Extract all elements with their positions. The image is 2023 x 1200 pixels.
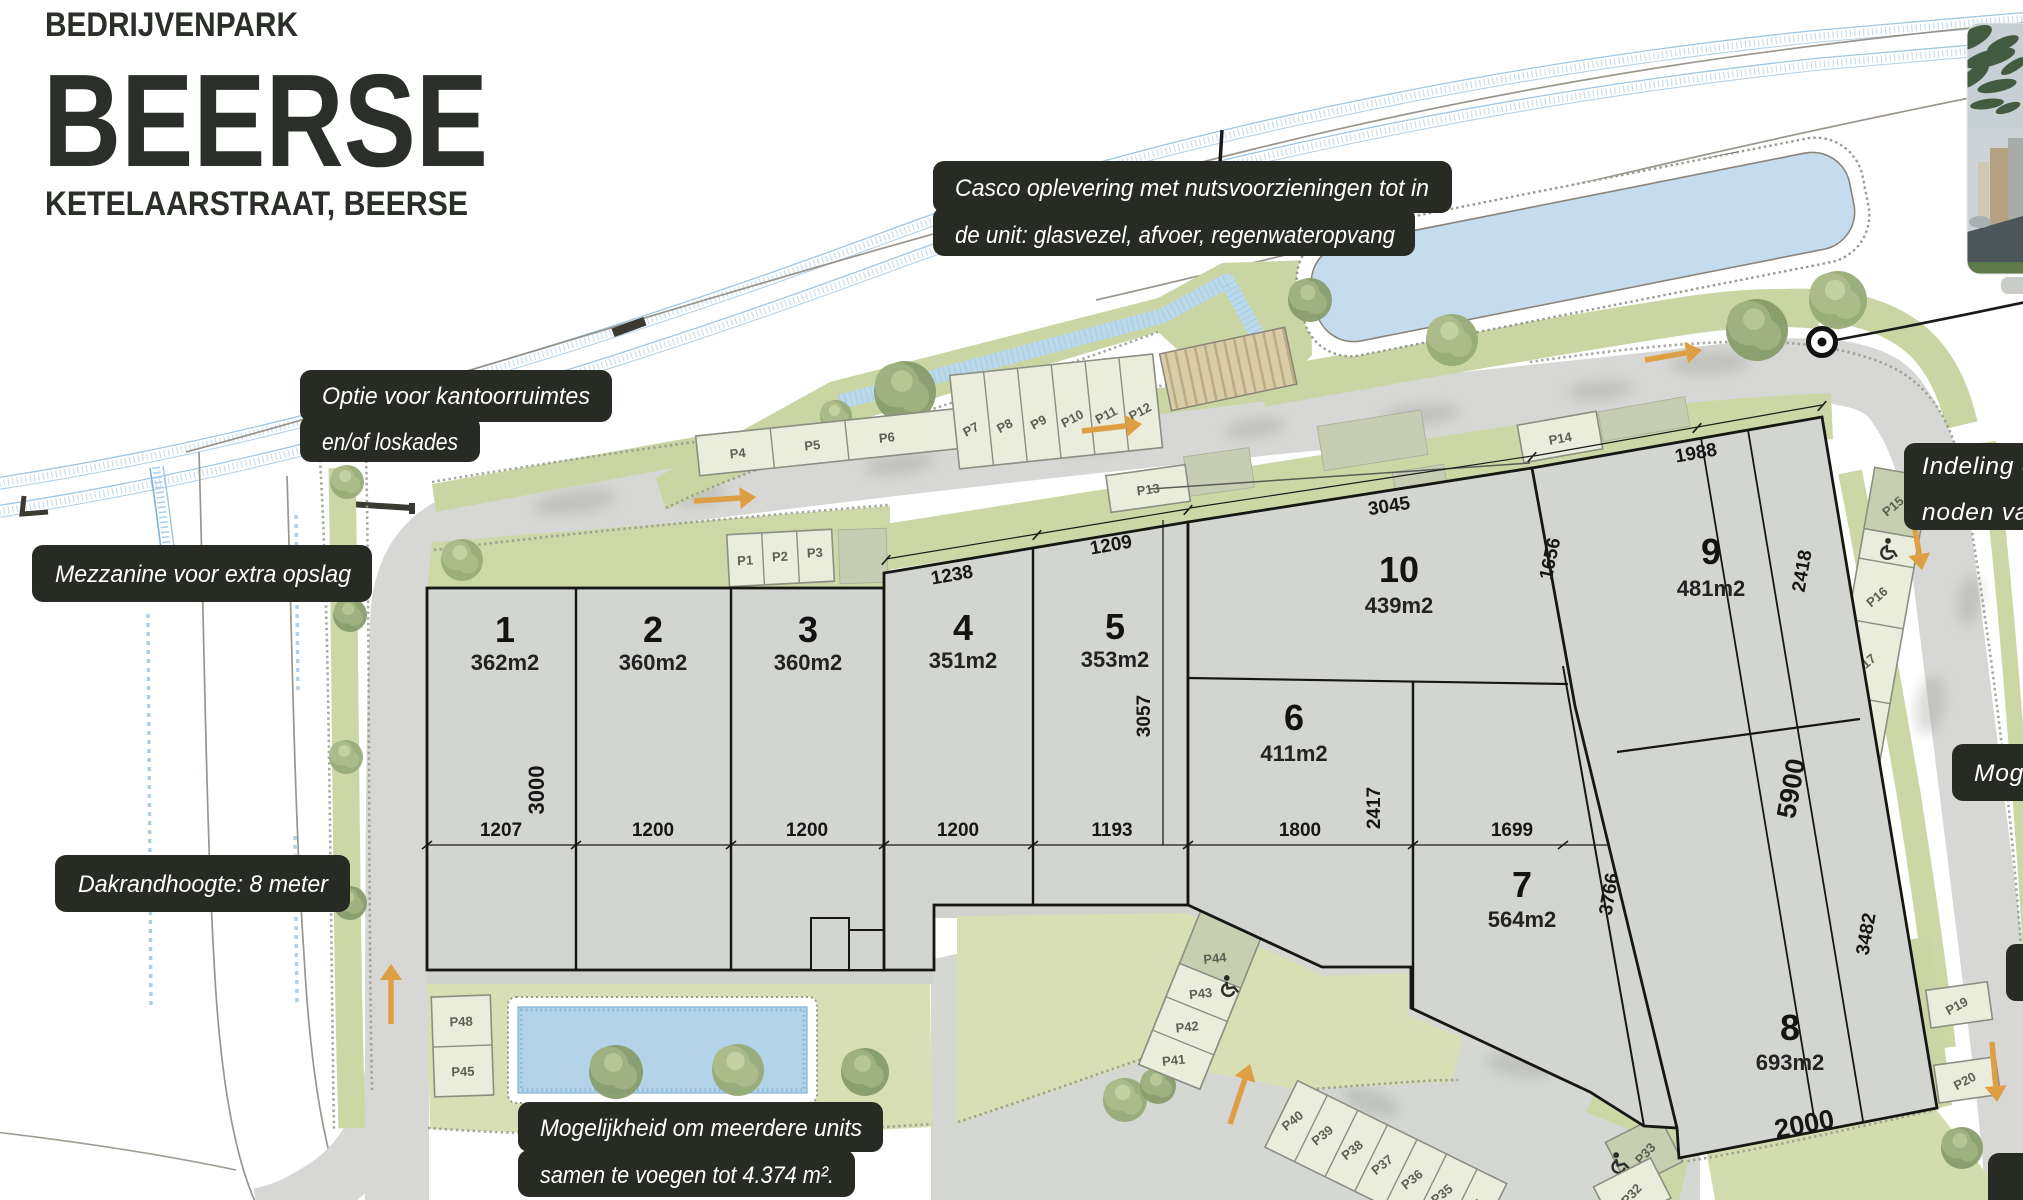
- svg-text:P6: P6: [878, 429, 895, 446]
- svg-text:6: 6: [1284, 697, 1304, 738]
- svg-text:564m2: 564m2: [1488, 907, 1557, 932]
- svg-text:en/of loskades: en/of loskades: [322, 429, 458, 456]
- svg-text:Mezzanine voor extra opslag: Mezzanine voor extra opslag: [55, 561, 351, 588]
- svg-text:8: 8: [1780, 1007, 1800, 1048]
- svg-text:7: 7: [1512, 864, 1532, 905]
- svg-text:1699: 1699: [1491, 820, 1533, 841]
- svg-text:samen te voegen tot 4.374 m².: samen te voegen tot 4.374 m².: [540, 1162, 834, 1189]
- svg-text:353m2: 353m2: [1081, 647, 1150, 672]
- svg-text:5: 5: [1105, 606, 1125, 647]
- svg-text:P2: P2: [772, 549, 789, 565]
- svg-text:Casco oplevering met nutsvoorz: Casco oplevering met nutsvoorzieningen t…: [955, 175, 1429, 202]
- svg-text:411m2: 411m2: [1260, 741, 1327, 766]
- svg-text:KETELAARSTRAAT, BEERSE: KETELAARSTRAAT, BEERSE: [45, 185, 468, 223]
- svg-text:693m2: 693m2: [1756, 1050, 1825, 1075]
- svg-text:P4: P4: [729, 445, 747, 462]
- svg-text:3057: 3057: [1134, 695, 1155, 737]
- svg-text:de unit: glasvezel, afvoer, re: de unit: glasvezel, afvoer, regenwaterop…: [955, 222, 1395, 249]
- svg-text:noden va: noden va: [1922, 499, 2023, 526]
- svg-text:Optie voor kantoorruimtes: Optie voor kantoorruimtes: [322, 383, 590, 410]
- svg-text:10: 10: [1379, 549, 1419, 590]
- svg-text:360m2: 360m2: [619, 650, 688, 675]
- svg-text:P48: P48: [449, 1014, 473, 1030]
- svg-text:3000: 3000: [524, 766, 549, 815]
- svg-text:1: 1: [495, 609, 515, 650]
- svg-text:9: 9: [1701, 531, 1721, 572]
- svg-text:Indeling o: Indeling o: [1922, 453, 2023, 480]
- svg-text:2417: 2417: [1364, 787, 1385, 829]
- svg-text:1193: 1193: [1091, 820, 1132, 841]
- svg-text:351m2: 351m2: [929, 648, 998, 673]
- svg-text:BEDRIJVENPARK: BEDRIJVENPARK: [45, 6, 298, 44]
- svg-text:1800: 1800: [1279, 820, 1321, 841]
- svg-text:1207: 1207: [480, 820, 522, 841]
- svg-text:4: 4: [953, 607, 973, 648]
- svg-text:P5: P5: [804, 437, 821, 454]
- svg-text:BEERSE: BEERSE: [43, 47, 488, 194]
- svg-text:Moge: Moge: [1974, 760, 2023, 787]
- svg-text:P45: P45: [451, 1064, 475, 1080]
- svg-text:362m2: 362m2: [471, 650, 540, 675]
- svg-text:360m2: 360m2: [774, 650, 843, 675]
- svg-text:439m2: 439m2: [1365, 593, 1434, 618]
- svg-text:481m2: 481m2: [1677, 576, 1746, 601]
- svg-text:P41: P41: [1161, 1052, 1186, 1069]
- svg-text:P1: P1: [737, 552, 754, 568]
- svg-text:P42: P42: [1175, 1018, 1200, 1035]
- svg-text:3: 3: [798, 609, 818, 650]
- svg-text:Dakrandhoogte: 8 meter: Dakrandhoogte: 8 meter: [78, 871, 329, 898]
- svg-text:P44: P44: [1203, 950, 1228, 967]
- svg-text:Mogelijkheid om meerdere units: Mogelijkheid om meerdere units: [540, 1115, 862, 1142]
- svg-text:1200: 1200: [937, 820, 979, 841]
- svg-text:P3: P3: [806, 545, 823, 561]
- svg-text:2: 2: [643, 609, 663, 650]
- svg-text:1200: 1200: [632, 820, 674, 841]
- svg-text:1200: 1200: [786, 820, 828, 841]
- svg-text:P13: P13: [1136, 480, 1161, 498]
- svg-text:P43: P43: [1188, 985, 1213, 1002]
